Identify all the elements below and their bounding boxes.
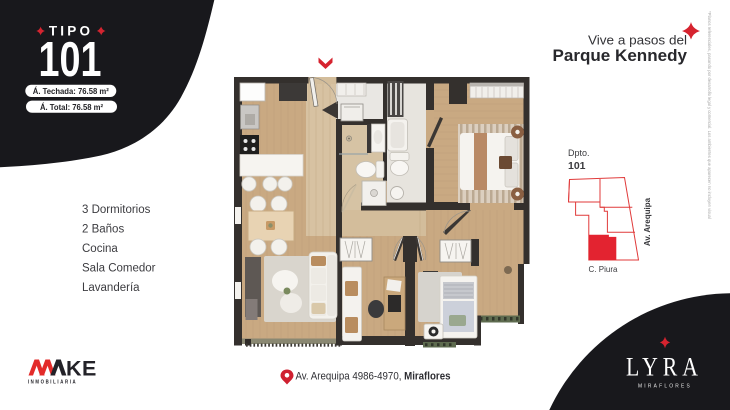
svg-text:Av. Arequipa 4986-4970, Mirafl: Av. Arequipa 4986-4970, Miraflores <box>296 371 451 383</box>
svg-text:C. Piura: C. Piura <box>589 265 618 274</box>
svg-text:Á. Techada: 76.58 m²: Á. Techada: 76.58 m² <box>33 86 109 96</box>
svg-text:MIRAFLORES: MIRAFLORES <box>638 384 692 390</box>
svg-text:Dpto.: Dpto. <box>568 148 590 158</box>
svg-text:Sala Comedor: Sala Comedor <box>82 263 156 275</box>
svg-text:*Planos referenciales, pasando: *Planos referenciales, pasando por desar… <box>707 11 712 219</box>
svg-text:101: 101 <box>39 33 102 87</box>
svg-text:101: 101 <box>568 160 586 172</box>
svg-text:Cocina: Cocina <box>82 243 118 255</box>
svg-text:Á. Total: 76.58 m²: Á. Total: 76.58 m² <box>40 102 103 112</box>
svg-text:Parque Kennedy: Parque Kennedy <box>553 47 688 65</box>
svg-text:INMOBILIARIA: INMOBILIARIA <box>28 380 78 386</box>
svg-text:LYRA: LYRA <box>626 353 703 382</box>
svg-text:Vive a pasos del: Vive a pasos del <box>588 34 687 48</box>
svg-text:Lavandería: Lavandería <box>82 282 140 294</box>
svg-text:2 Baños: 2 Baños <box>82 224 124 236</box>
svg-text:KE: KE <box>66 357 97 381</box>
svg-text:3 Dormitorios: 3 Dormitorios <box>82 204 151 216</box>
svg-text:Av. Arequipa: Av. Arequipa <box>643 197 652 246</box>
